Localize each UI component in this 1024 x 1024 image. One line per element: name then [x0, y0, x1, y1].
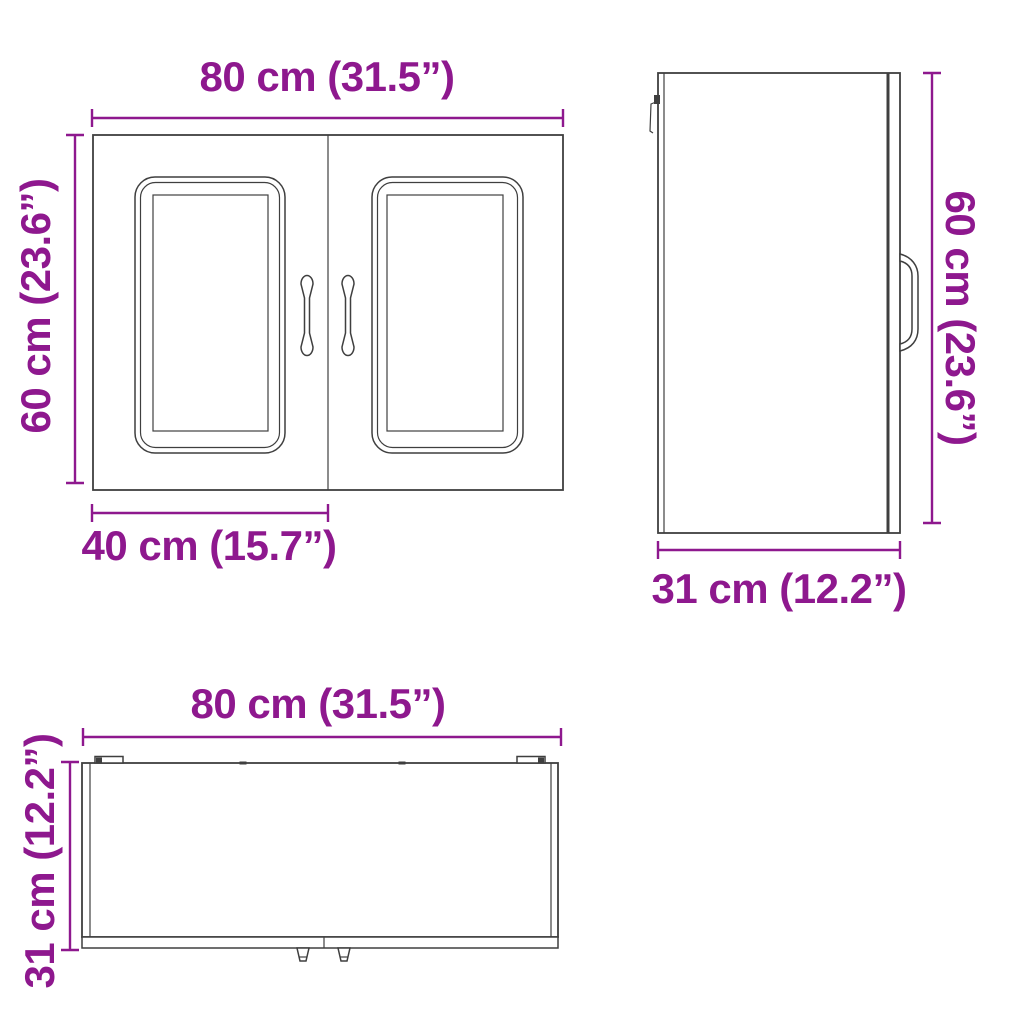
- top-view-drawing: [82, 757, 558, 962]
- side-depth-dimension-line: [658, 541, 900, 559]
- front-height-label: 60 cm (23.6”): [12, 126, 60, 486]
- top-right-hinge-block: [538, 758, 544, 763]
- front-door-width-label: 40 cm (15.7”): [9, 522, 409, 570]
- front-left-door-frame-outer: [135, 177, 285, 453]
- top-left-knob: [297, 948, 309, 961]
- product-dimension-diagram: 80 cm (31.5”) 60 cm (23.6”) 40 cm (15.7”…: [0, 0, 1024, 1024]
- front-right-door-frame-outer: [372, 177, 523, 453]
- top-depth-label: 31 cm (12.2”): [16, 681, 64, 1024]
- side-depth-label: 31 cm (12.2”): [579, 565, 979, 613]
- top-door-front-strip: [82, 937, 558, 948]
- top-back-edge-mark-left: [240, 762, 247, 765]
- front-view-drawing: [93, 135, 563, 490]
- top-back-edge-mark-right: [399, 762, 406, 765]
- top-width-label: 80 cm (31.5”): [118, 680, 518, 728]
- top-left-hinge-block: [96, 758, 102, 763]
- side-view-drawing: [650, 73, 918, 533]
- front-width-dimension-line: [92, 109, 563, 127]
- side-hinge-bracket: [650, 102, 656, 133]
- side-carcass: [658, 73, 900, 533]
- top-carcass: [82, 763, 558, 937]
- top-right-knob: [338, 948, 350, 961]
- cabinet-diagram-svg: [0, 0, 1024, 1024]
- front-door-width-dimension-line: [92, 504, 328, 522]
- front-height-dimension-line: [66, 135, 84, 483]
- front-width-label: 80 cm (31.5”): [127, 53, 527, 101]
- side-handle: [900, 254, 918, 351]
- side-height-label: 60 cm (23.6”): [936, 138, 984, 498]
- top-width-dimension-line: [83, 728, 561, 746]
